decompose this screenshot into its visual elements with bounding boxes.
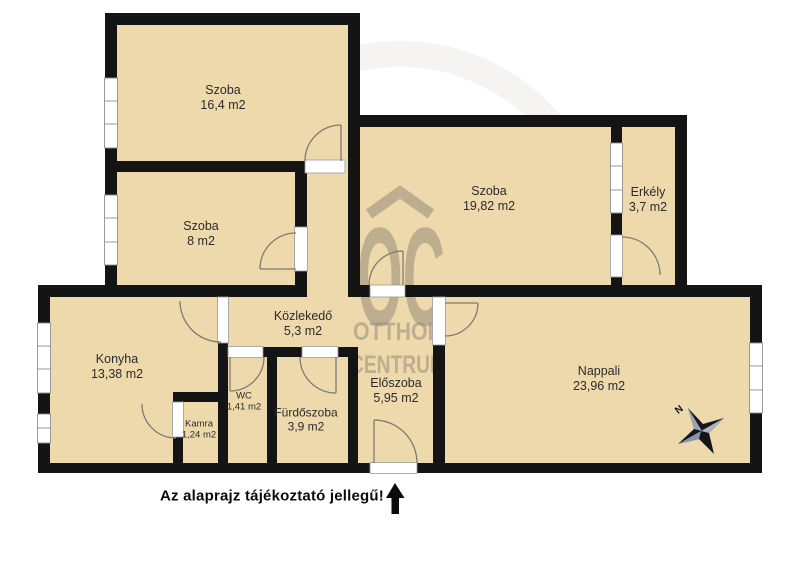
room-label-kamra: Kamra1,24 m2 [182, 419, 216, 442]
door-opening [370, 463, 417, 474]
room-label-furdoszoba: Fürdőszoba3,9 m2 [274, 406, 337, 435]
door-opening [305, 160, 345, 173]
window [105, 195, 118, 265]
room-label-wc: WC1,41 m2 [227, 391, 261, 414]
room-label-eloszoba: Előszoba5,95 m2 [370, 376, 421, 406]
door-opening [295, 227, 308, 271]
room-label-szoba-8: Szoba8 m2 [183, 219, 218, 249]
room-label-kozlekedo: Közlekedő5,3 m2 [274, 309, 332, 339]
door-opening [611, 235, 623, 277]
floor-plan-drawing: OC OTTHON CENTRUM [0, 0, 800, 565]
door-opening [433, 297, 446, 345]
watermark-line2: CENTRUM [350, 351, 446, 379]
window [750, 343, 763, 413]
room-label-szoba-19-82: Szoba19,82 m2 [463, 184, 515, 214]
room-label-konyha: Konyha13,38 m2 [91, 352, 143, 382]
window [611, 143, 623, 213]
window [38, 414, 51, 443]
door-opening [228, 347, 263, 358]
watermark-line1: OTTHON [353, 318, 443, 346]
door-opening [218, 297, 229, 343]
entrance-arrow-icon [386, 483, 405, 514]
disclaimer-note: Az alaprajz tájékoztató jellegű! [160, 488, 384, 505]
room-label-szoba-16-4: Szoba16,4 m2 [200, 83, 245, 113]
room-label-erkely: Erkély3,7 m2 [629, 185, 667, 215]
window [105, 78, 118, 148]
floor-plan-page: OC OTTHON CENTRUM [0, 0, 800, 565]
room-label-nappali: Nappali23,96 m2 [573, 364, 625, 394]
door-opening [370, 285, 405, 297]
door-opening [302, 347, 338, 358]
window [38, 323, 51, 393]
